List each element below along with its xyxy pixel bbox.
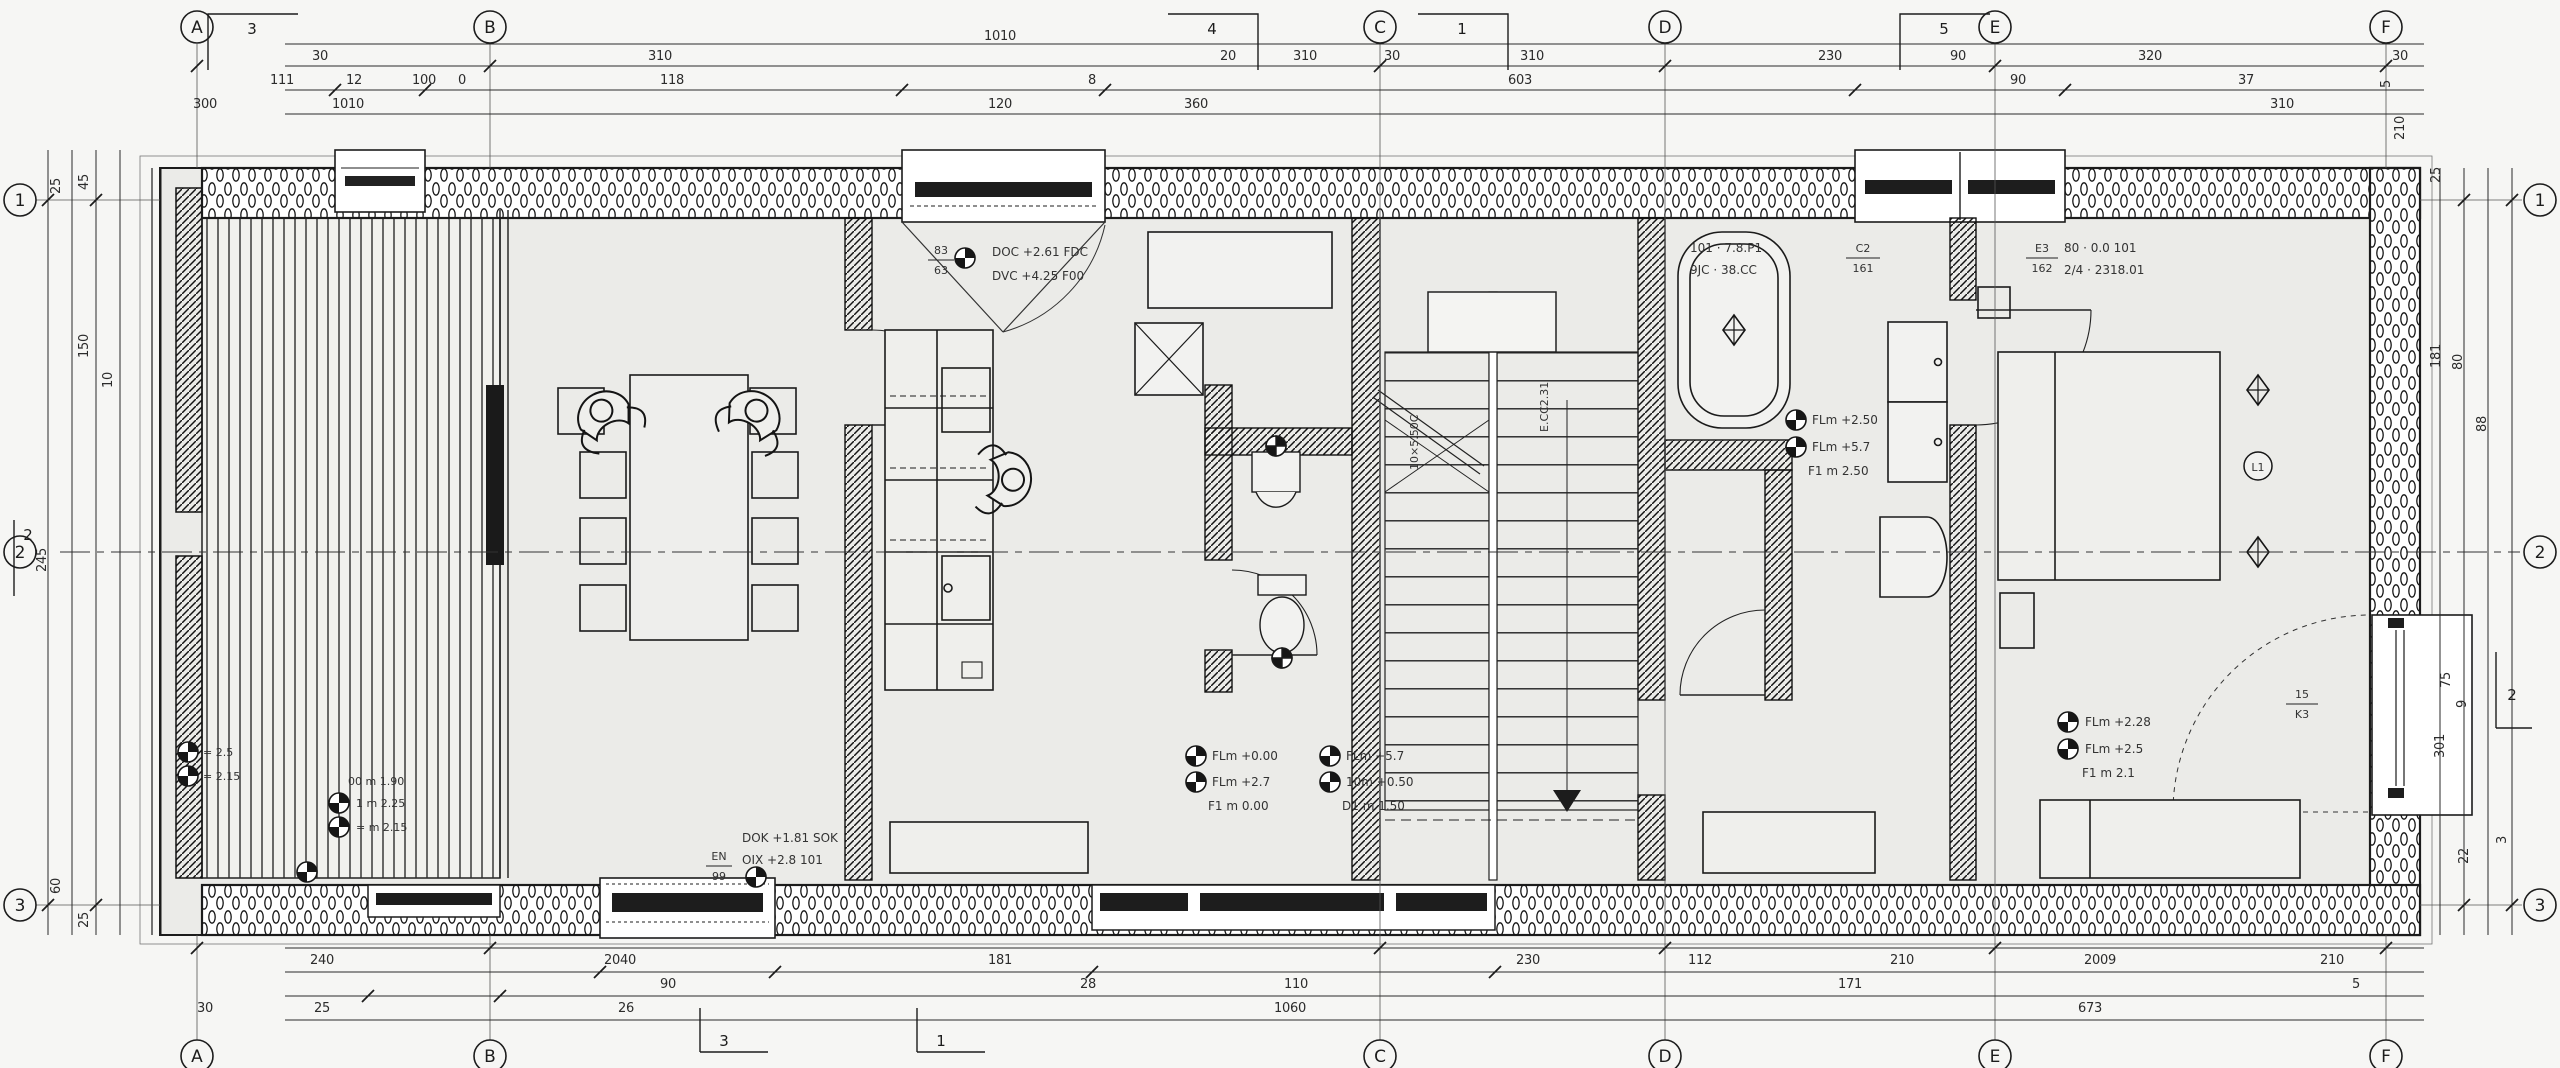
level-text: FLm +2.7 <box>1212 775 1270 789</box>
bed-lower <box>2040 800 2300 878</box>
sliding-door-leaf <box>486 385 504 565</box>
level-marker-icon <box>746 867 766 887</box>
dim-label: 181 <box>2429 344 2444 368</box>
level-marker-icon <box>178 742 198 762</box>
wall-bath-nook-upper <box>1205 385 1232 560</box>
dim-label: 181 <box>988 953 1012 968</box>
dim-label: 310 <box>1293 49 1317 64</box>
terrace-wall-upper <box>176 188 202 512</box>
wall-living-utility-lower <box>845 425 872 880</box>
dim-label: 111 <box>270 73 294 88</box>
dim-label: 310 <box>648 49 672 64</box>
wall-living-utility-upper <box>845 218 872 330</box>
wall-wc-right <box>1765 470 1792 700</box>
level-marker-icon <box>1786 410 1806 430</box>
dim-label: 9 <box>2455 700 2470 708</box>
dim-label: 90 <box>660 977 676 992</box>
dim-label: 20 <box>1220 49 1236 64</box>
level-text: FLm +2.50 <box>1812 413 1878 427</box>
level-marker-icon <box>178 766 198 786</box>
door-tag-text: 9JC · 38.CC <box>1690 263 1757 277</box>
dim-label: 5 <box>2352 977 2360 992</box>
level-marker-icon <box>1320 772 1340 792</box>
level-text: = 2.5 <box>203 746 233 759</box>
level-text: FLm +2.28 <box>2085 715 2151 729</box>
grid-label: E <box>1990 1047 2001 1067</box>
dim-label: 25 <box>49 178 64 194</box>
dim-label: 310 <box>1520 49 1544 64</box>
door-tag-text: 80 · 0.0 101 <box>2064 241 2137 255</box>
dim-label: 3 <box>2495 836 2510 844</box>
dim-label: 210 <box>1890 953 1914 968</box>
dim-label: 25 <box>77 912 92 928</box>
section-flag-label: 1 <box>936 1032 946 1050</box>
washbasin-unit <box>1880 517 1947 597</box>
stair-landing <box>1428 292 1556 352</box>
tag-den: 161 <box>1853 262 1874 275</box>
level-marker-icon <box>1320 746 1340 766</box>
wall-bath-nook-lower <box>1205 650 1232 692</box>
dim-label: 2009 <box>2084 953 2116 968</box>
dim-label: 230 <box>1818 49 1842 64</box>
section-flag-bracket <box>917 1008 985 1052</box>
section-flag-label: 3 <box>719 1032 729 1050</box>
dim-label: 25 <box>314 1001 330 1016</box>
grid-label: 1 <box>2535 191 2546 211</box>
level-marker-icon <box>955 248 975 268</box>
utility-counter <box>1148 232 1332 308</box>
level-text: 10m +0.50 <box>1346 775 1414 789</box>
wall-stair-right-lower <box>1638 795 1665 880</box>
dim-label: 320 <box>2138 49 2162 64</box>
level-marker-icon <box>1186 746 1206 766</box>
dim-label: 100 <box>412 73 436 88</box>
dim-label: 118 <box>660 73 684 88</box>
stair-stringer <box>1489 292 1497 880</box>
wall-top <box>202 168 2420 218</box>
dim-label: 2040 <box>604 953 636 968</box>
window-terrace-top <box>335 150 425 212</box>
kitchen-island <box>885 330 993 690</box>
dim-label: 90 <box>2010 73 2026 88</box>
level-text: F1 m 2.50 <box>1808 464 1869 478</box>
grid-label: D <box>1658 1047 1671 1067</box>
level-marker-icon <box>1272 648 1292 668</box>
dim-label: 60 <box>49 878 64 894</box>
tag-den: 99 <box>712 870 726 883</box>
tag-num: 15 <box>2295 688 2309 701</box>
level-marker-icon <box>329 793 349 813</box>
dim-label: 12 <box>346 73 362 88</box>
dim-label: 230 <box>1516 953 1540 968</box>
section-flag-bracket <box>700 1008 768 1052</box>
grid-label: 3 <box>2535 896 2546 916</box>
dim-label: 25 <box>2429 167 2444 183</box>
section-flag-label: 1 <box>1457 20 1467 38</box>
dim-label: 210 <box>2393 116 2408 140</box>
stair-flight-left <box>1385 352 1489 810</box>
level-text: FLm +5.7 <box>1346 749 1404 763</box>
dim-label: 245 <box>35 548 50 572</box>
dim-label: 1060 <box>1274 1001 1306 1016</box>
luminaire-label: L1 <box>2251 461 2264 474</box>
bench-hall <box>1703 812 1875 873</box>
level-marker-icon <box>1266 436 1286 456</box>
dim-label: 26 <box>618 1001 634 1016</box>
grid-label: F <box>2381 1047 2391 1067</box>
level-marker-icon <box>297 862 317 882</box>
tag-den: 162 <box>2032 262 2053 275</box>
wall-bedroom-lower <box>1950 425 1976 880</box>
window-strip-bottom <box>1092 885 1495 930</box>
dim-label: 80 <box>2451 354 2466 370</box>
section-flag-label: 3 <box>247 20 257 38</box>
stair-label-left: 10×5.50C <box>1408 414 1421 470</box>
dim-label: 240 <box>310 953 334 968</box>
dim-label: 28 <box>1080 977 1096 992</box>
dim-label: 120 <box>988 97 1012 112</box>
section-flag-label: 5 <box>1939 20 1949 38</box>
level-text: FLm +2.5 <box>2085 742 2143 756</box>
grid-label: E <box>1990 18 2001 38</box>
bathtub <box>1678 232 1790 428</box>
grid-label: C <box>1374 18 1386 38</box>
tag-num: EN <box>711 850 726 863</box>
grid-label: B <box>484 18 496 38</box>
dim-label: 171 <box>1838 977 1862 992</box>
grid-label: 2 <box>2535 543 2546 563</box>
grid-label: D <box>1658 18 1671 38</box>
grid-label: 2 <box>15 543 26 563</box>
section-flag-label: 4 <box>1207 20 1217 38</box>
dim-label: 88 <box>2475 416 2490 432</box>
level-text: D1 m 1.50 <box>1342 799 1405 813</box>
level-text: OIX +2.8 101 <box>742 853 823 867</box>
level-text: 00 m 1.90 <box>348 775 404 788</box>
level-text: 1 m 2.25 <box>356 797 405 810</box>
dim-label: 112 <box>1688 953 1712 968</box>
section-flag-label: 2 <box>23 526 33 544</box>
luminaire-marker: L1 <box>2244 452 2272 480</box>
grid-label: A <box>191 18 203 38</box>
washer <box>1135 323 1203 395</box>
dim-label: 90 <box>1950 49 1966 64</box>
dim-label: 360 <box>1184 97 1208 112</box>
bench-living <box>890 822 1088 873</box>
wall-bath-bottom <box>1665 440 1792 470</box>
vanity-cabinets <box>1880 322 1947 597</box>
window-double-top <box>1855 150 2065 222</box>
level-text: DOC +2.61 FDC <box>992 245 1088 259</box>
dim-label: 673 <box>2078 1001 2102 1016</box>
dim-label: 0 <box>458 73 466 88</box>
dim-label: 310 <box>2270 97 2294 112</box>
grid-label: F <box>2381 18 2391 38</box>
dim-label: 110 <box>1284 977 1308 992</box>
level-marker-icon <box>1186 772 1206 792</box>
level-marker-icon <box>329 817 349 837</box>
grid-label: 3 <box>15 896 26 916</box>
dim-label: 30 <box>197 1001 213 1016</box>
dim-label: 300 <box>193 97 217 112</box>
level-text: F1 m 2.1 <box>2082 766 2135 780</box>
terrace-wall-lower <box>176 556 202 878</box>
dim-label: 301 <box>2433 734 2448 758</box>
dim-label: 75 <box>2439 672 2454 688</box>
tag-num: E3 <box>2035 242 2049 255</box>
dim-label: 210 <box>2320 953 2344 968</box>
staircase: 10×5.50C E.CC2.31 <box>1374 292 1638 880</box>
tag-num: C2 <box>1856 242 1871 255</box>
level-marker-icon <box>1786 437 1806 457</box>
dim-label: 37 <box>2238 73 2254 88</box>
window-living-bottom <box>368 885 500 917</box>
grid-label: B <box>484 1047 496 1067</box>
floor-plan-svg: 10×5.50C E.CC2.31 <box>0 0 2560 1068</box>
level-text: FLm +5.7 <box>1812 440 1870 454</box>
dim-label: 10 <box>101 372 116 388</box>
door-tag-text: 2/4 · 2318.01 <box>2064 263 2144 277</box>
door-tag-text: 101 · 7.8.P1 <box>1690 241 1762 255</box>
drawing-sheet: 10×5.50C E.CC2.31 <box>0 0 2560 1068</box>
dim-label: 8 <box>1088 73 1096 88</box>
stair-label-right: E.CC2.31 <box>1538 382 1551 432</box>
level-text: = m 2.15 <box>356 821 407 834</box>
entry-door-bottom <box>600 878 775 938</box>
grid-label: A <box>191 1047 203 1067</box>
dim-label: 1010 <box>332 97 364 112</box>
level-text: FLm +0.00 <box>1212 749 1278 763</box>
dim-label: 5 <box>2379 80 2394 88</box>
dim-label: 30 <box>1384 49 1400 64</box>
dim-label: 603 <box>1508 73 1532 88</box>
level-text: DOK +1.81 SOK <box>742 831 839 845</box>
wall-stair-right-upper <box>1638 218 1665 700</box>
tag-den: 63 <box>934 264 948 277</box>
grid-label: 1 <box>15 191 26 211</box>
dim-overall-top: 1010 <box>984 29 1016 44</box>
dim-label: 30 <box>312 49 328 64</box>
dim-label: 45 <box>77 174 92 190</box>
level-marker-icon <box>2058 739 2078 759</box>
level-text: = 2.15 <box>203 770 240 783</box>
dim-label: 22 <box>2457 848 2472 864</box>
dim-label: 150 <box>77 334 92 358</box>
wall-bedroom-upper <box>1950 218 1976 300</box>
dim-label: 30 <box>2392 49 2408 64</box>
level-marker-icon <box>2058 712 2078 732</box>
grid-label: C <box>1374 1047 1386 1067</box>
level-text: F1 m 0.00 <box>1208 799 1269 813</box>
tag-num: 83 <box>934 244 948 257</box>
tag-den: K3 <box>2295 708 2309 721</box>
bed-main <box>1998 352 2220 580</box>
section-flag-label: 2 <box>2507 686 2517 704</box>
level-text: DVC +4.25 F00 <box>992 269 1084 283</box>
